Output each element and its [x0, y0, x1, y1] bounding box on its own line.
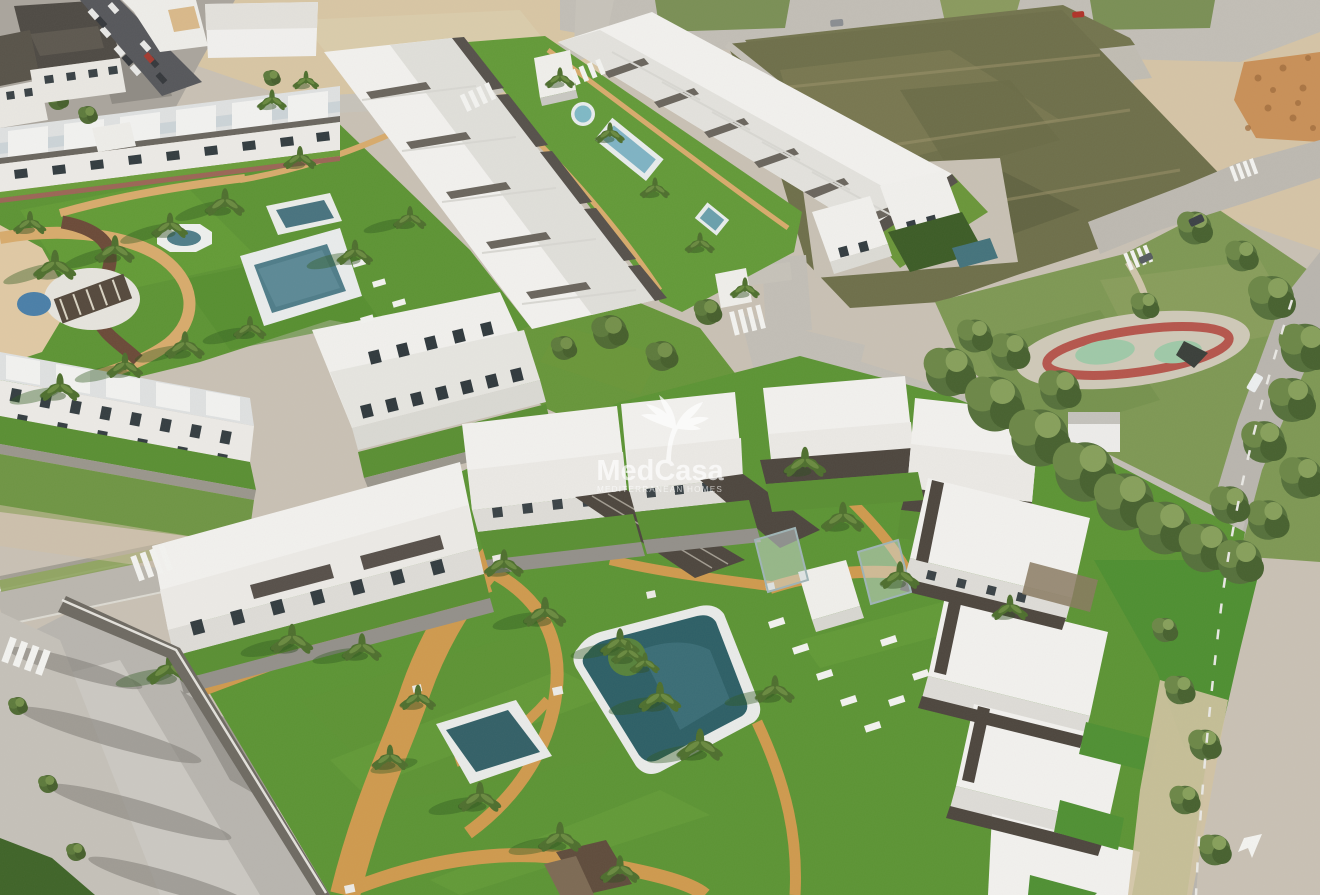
svg-text:MEDITERRANEAN HOMES: MEDITERRANEAN HOMES — [597, 485, 723, 494]
svg-text:MedCasa: MedCasa — [596, 455, 724, 487]
